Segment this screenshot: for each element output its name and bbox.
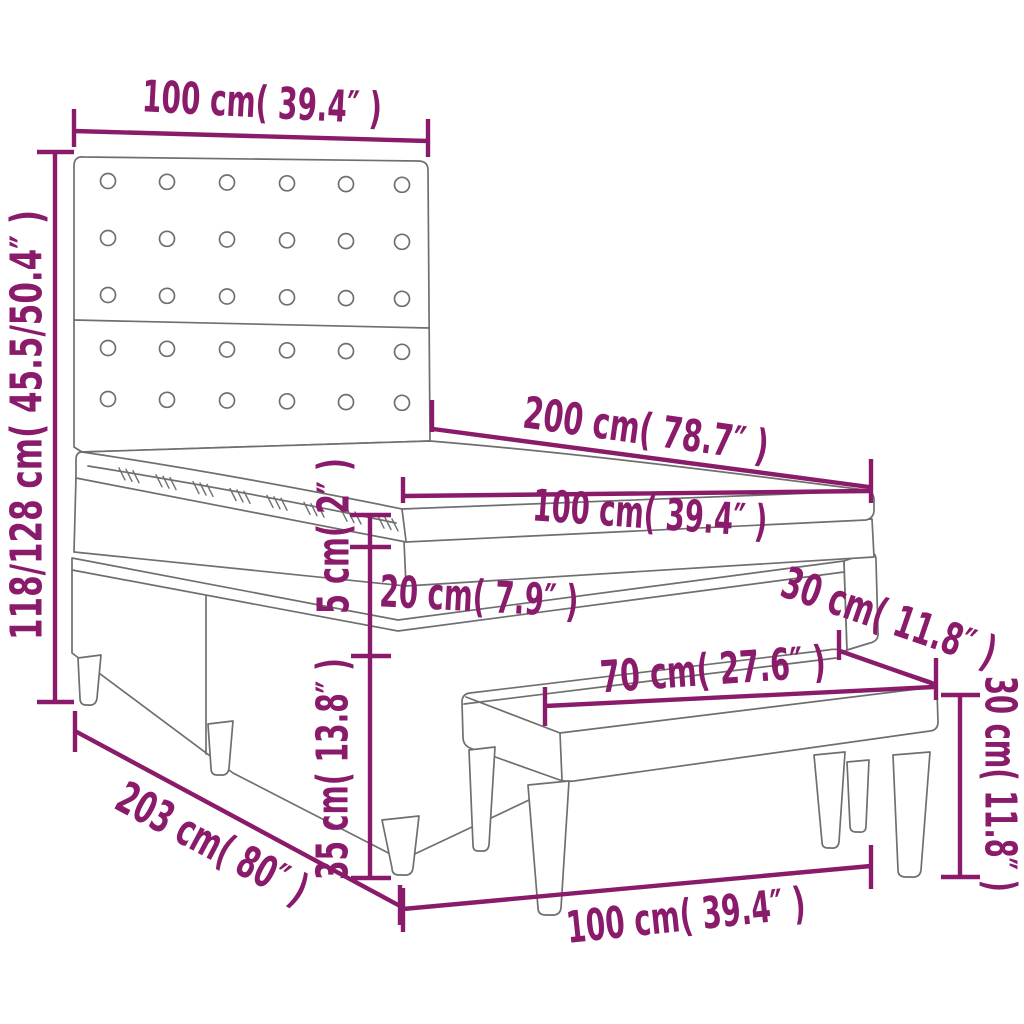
headboard-button [395,291,410,306]
dim-label-topper-thickness: 5 cm( 2″ ) [309,458,360,614]
headboard-button [101,392,116,407]
headboard-button [220,342,235,357]
dimension-diagram: 100 cm( 39.4″ ) 118/128 cm( 45.5/50.4″ )… [0,0,1024,1024]
headboard-button [101,288,116,303]
dim-label-headboard-height: 118/128 cm( 45.5/50.4″ ) [2,210,53,640]
bed-leg [78,655,101,705]
dimension-headboard-width: 100 cm( 39.4″ ) [74,71,428,157]
headboard-button [339,177,354,192]
headboard-button [339,291,354,306]
dim-label-headboard-width: 100 cm( 39.4″ ) [141,71,383,134]
dim-label-bench-height: 30 cm( 11.8″ ) [975,676,1024,892]
dimension-headboard-height: 118/128 cm( 45.5/50.4″ ) [2,152,75,702]
headboard-button [220,175,235,190]
headboard-button [280,343,295,358]
headboard-button [395,234,410,249]
headboard-button [160,174,175,189]
headboard-button [220,393,235,408]
dim-label-mattress-thickness: 20 cm( 7.9″ ) [378,566,579,627]
dim-line [941,695,980,877]
bench-leg [893,752,930,877]
headboard-button [220,232,235,247]
headboard-button [395,395,410,410]
headboard-button [339,344,354,359]
headboard-button [220,289,235,304]
bed-leg [382,816,419,875]
headboard-button [395,344,410,359]
bed-leg [847,760,869,832]
headboard-button [280,394,295,409]
headboard-button [160,341,175,356]
headboard-button [395,177,410,192]
bench-leg [469,747,495,851]
headboard [74,157,430,452]
headboard-button [101,174,116,189]
dimension-bench-width: 100 cm( 39.4″ ) [403,845,871,954]
headboard-button [101,341,116,356]
headboard-button [280,176,295,191]
dim-label-base-height: 35 cm( 13.8″ ) [308,658,359,880]
headboard-button [101,231,116,246]
headboard-button [339,234,354,249]
headboard-button [339,395,354,410]
bench-leg [814,752,845,848]
bed-leg [208,721,233,775]
headboard-button [280,290,295,305]
headboard-button [160,288,175,303]
dimension-bench-height: 30 cm( 11.8″ ) [941,676,1024,892]
headboard-button [160,392,175,407]
headboard-button [160,231,175,246]
headboard-button [280,233,295,248]
